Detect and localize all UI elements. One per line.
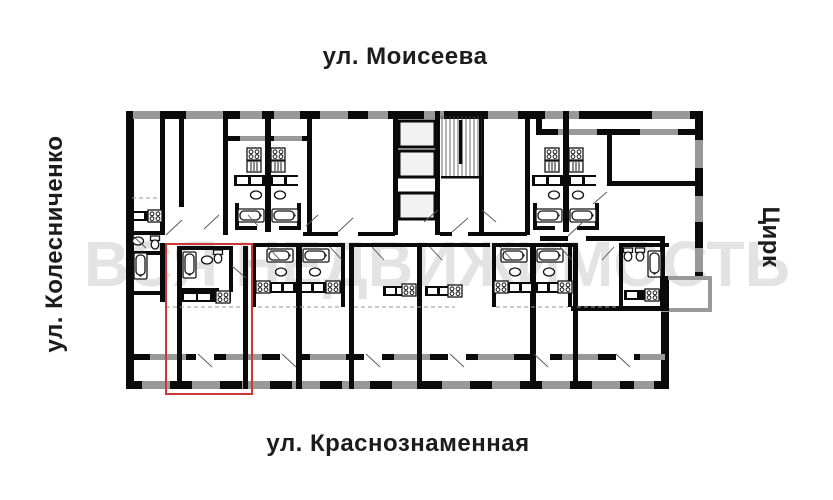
bathtub-icon (267, 249, 293, 262)
sink-icon (202, 256, 213, 264)
bathtub-icon (134, 253, 147, 279)
stove-icon (326, 281, 340, 293)
sink-icon (251, 191, 262, 199)
elevator-shafts (399, 121, 435, 219)
sink-icon (549, 191, 560, 199)
sink-icon (573, 191, 584, 199)
stove-icon (216, 291, 230, 303)
stove-icon (558, 281, 572, 293)
bathtub-icon (648, 251, 661, 277)
sink-icon (310, 268, 321, 276)
oven-icon (247, 161, 261, 172)
bathtub-icon (536, 209, 562, 222)
bathtub-icon (537, 249, 563, 262)
stove-icon (645, 289, 659, 301)
stove-icon (256, 281, 270, 293)
street-label-right: Цирк (757, 207, 784, 268)
stove-icon (402, 284, 416, 296)
stove-icon (148, 210, 162, 222)
bathtub-icon (501, 249, 527, 262)
floor-plan-page: ВСЯ НЕДВИЖИМОСТЬ ул. Моисеева ул. Колесн… (0, 0, 833, 500)
toilet-icon (214, 250, 223, 263)
sink-icon (276, 268, 287, 276)
stairs-icon (441, 116, 482, 179)
street-label-top: ул. Моисеева (323, 43, 488, 70)
stove-icon (569, 148, 583, 160)
stove-icon (545, 148, 559, 160)
toilet-icon (624, 248, 633, 261)
street-label-bottom: ул. Краснознаменная (266, 430, 529, 457)
bathtub-icon (238, 209, 264, 222)
bathtub-icon (303, 249, 329, 262)
oven-icon (569, 161, 583, 172)
oven-icon (271, 161, 285, 172)
oven-icon (545, 161, 559, 172)
stove-icon (448, 285, 462, 297)
stove-icon (494, 281, 508, 293)
toilet-icon (151, 236, 160, 249)
bathtub-icon (570, 209, 596, 222)
bathtub-icon (183, 252, 196, 278)
sink-icon (275, 191, 286, 199)
stove-icon (271, 148, 285, 160)
bathtub-icon (272, 209, 298, 222)
street-label-left: ул. Колесниченко (41, 135, 68, 352)
sink-icon (510, 268, 521, 276)
floor-plan: ВСЯ НЕДВИЖИМОСТЬ ул. Моисеева ул. Колесн… (0, 0, 833, 500)
sink-icon (544, 268, 555, 276)
stove-icon (247, 148, 261, 160)
toilet-icon (636, 248, 645, 261)
